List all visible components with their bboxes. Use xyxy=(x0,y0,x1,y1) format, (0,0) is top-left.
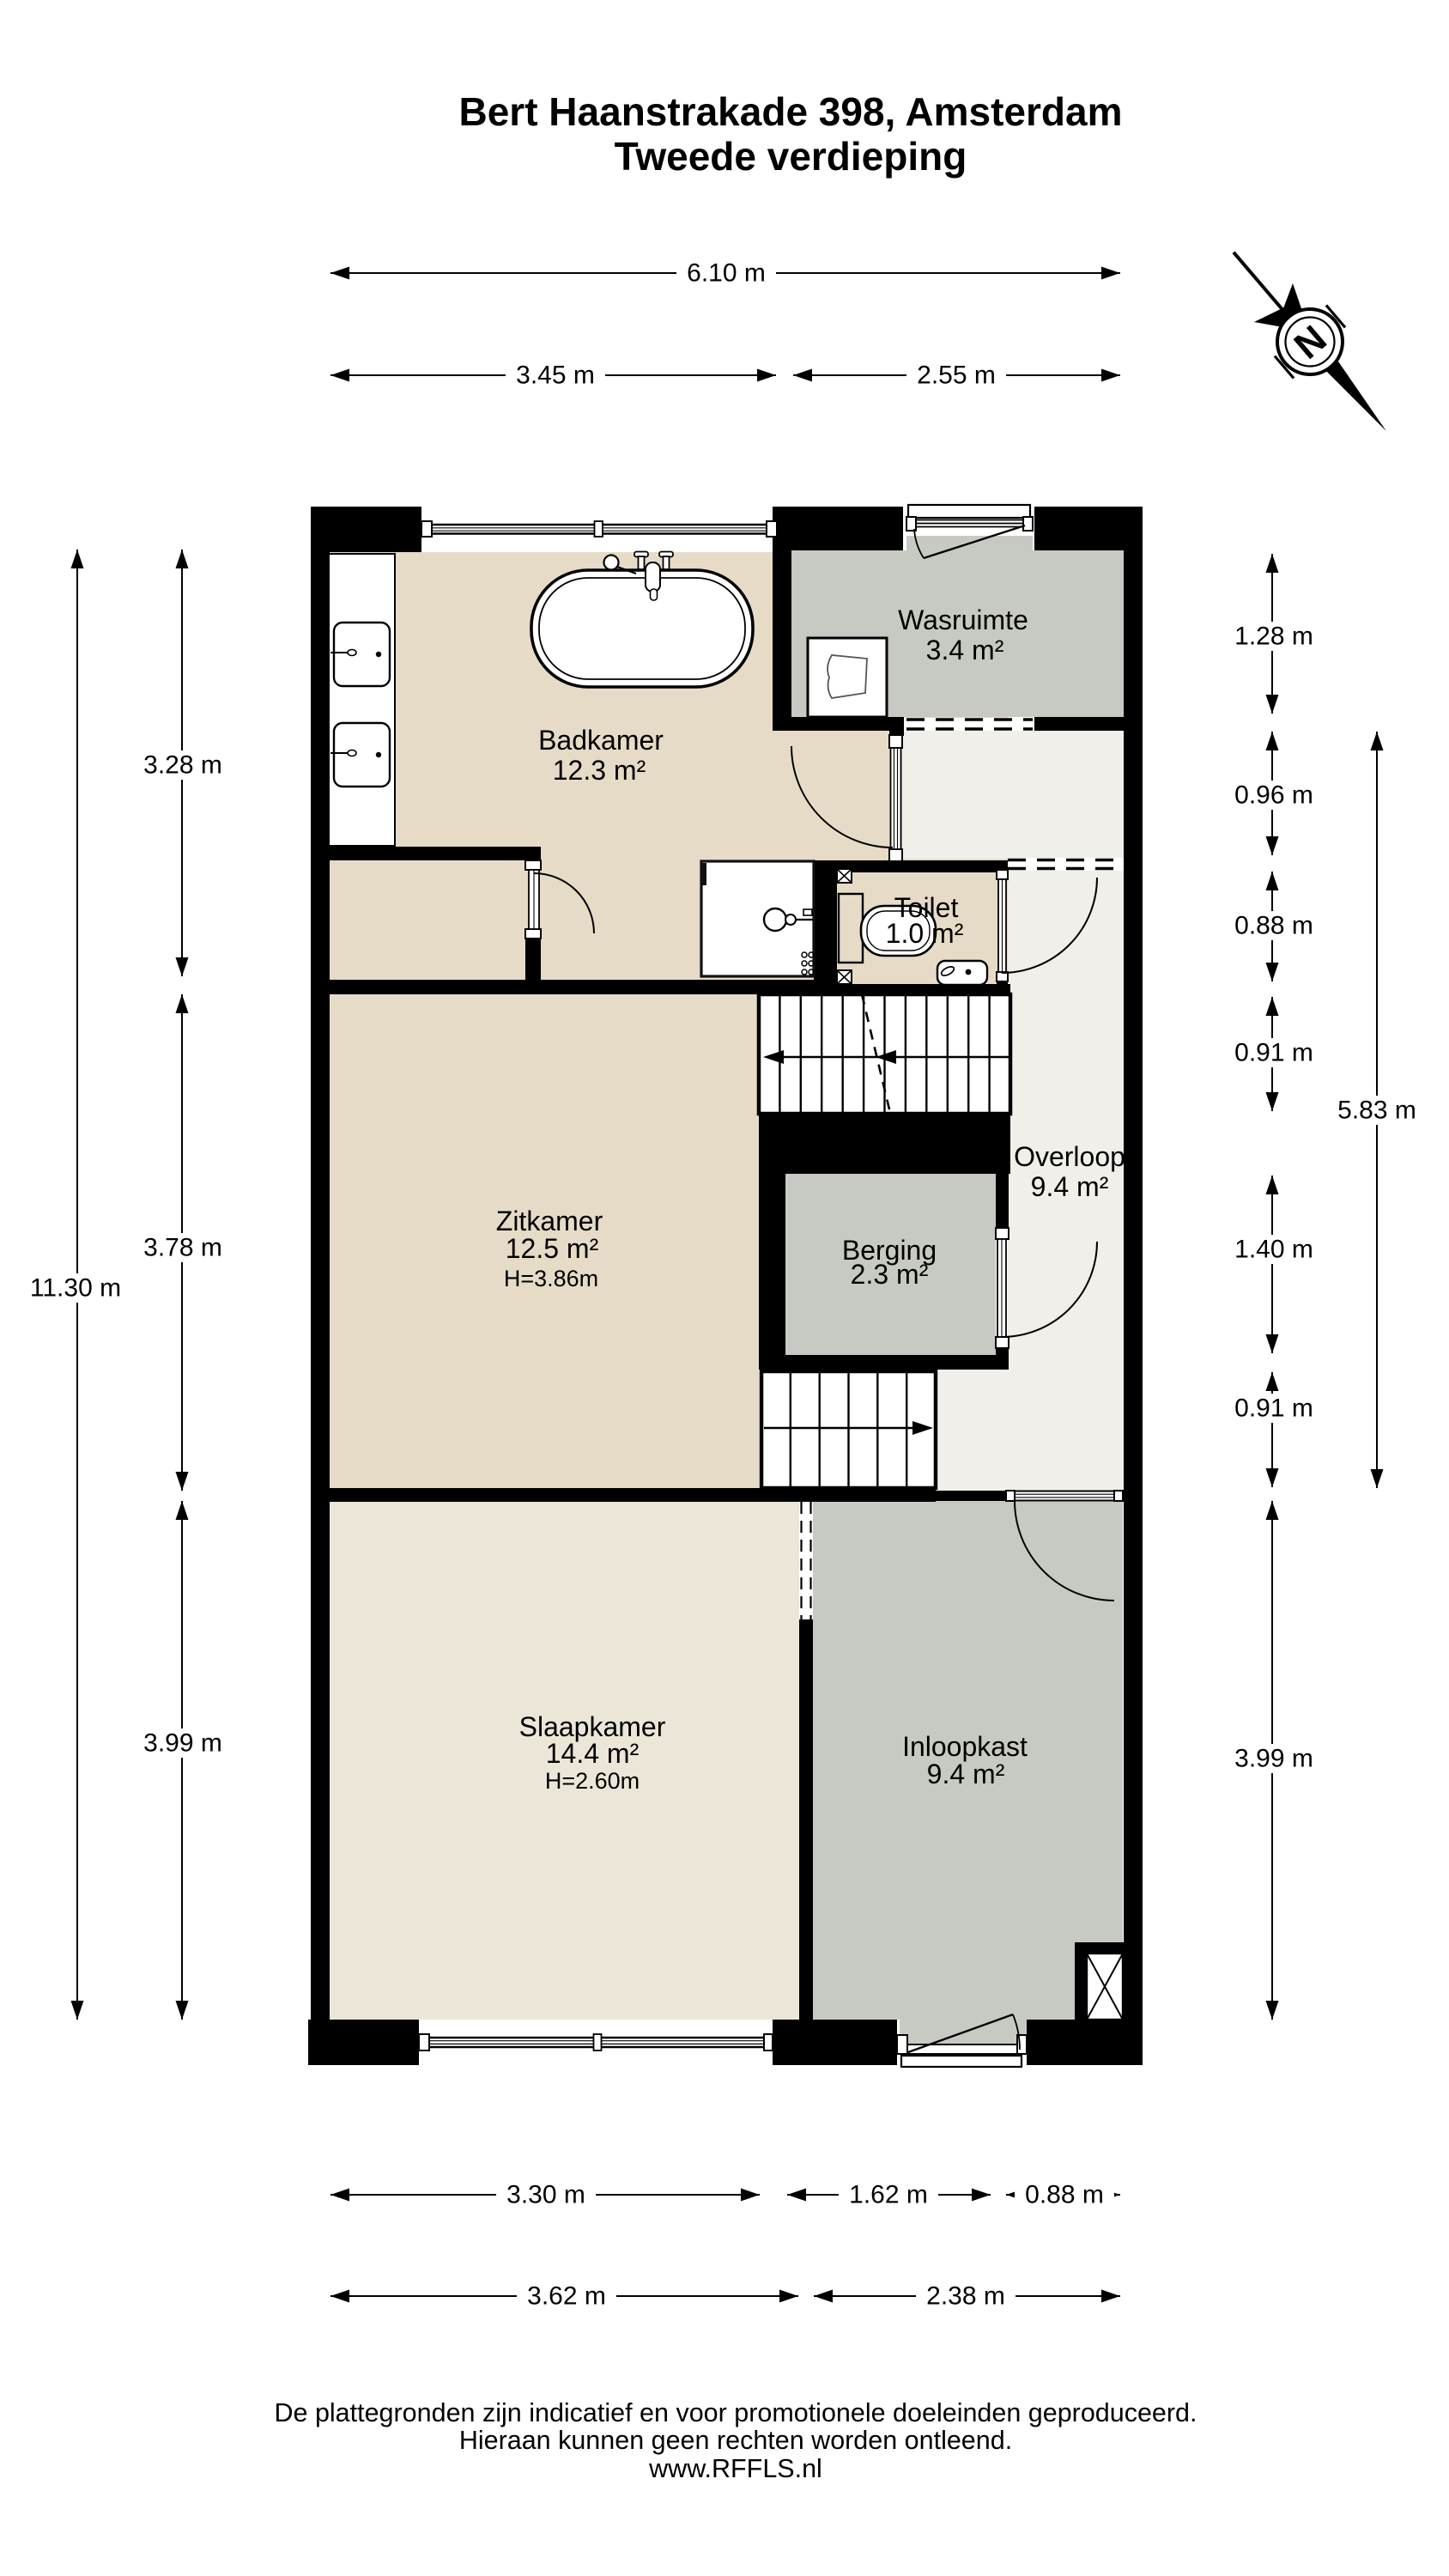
svg-text:3.62 m: 3.62 m xyxy=(527,2282,606,2311)
svg-text:Badkamer: Badkamer xyxy=(538,725,664,756)
svg-text:Hieraan kunnen geen rechten wo: Hieraan kunnen geen rechten worden ontle… xyxy=(459,2426,1012,2455)
svg-text:Zitkamer: Zitkamer xyxy=(496,1206,603,1236)
svg-text:6.10 m: 6.10 m xyxy=(687,259,766,288)
svg-text:Wasruimte: Wasruimte xyxy=(898,605,1028,635)
svg-text:0.91 m: 0.91 m xyxy=(1234,1039,1313,1067)
svg-text:2.38 m: 2.38 m xyxy=(926,2282,1005,2311)
svg-text:3.28 m: 3.28 m xyxy=(143,751,222,780)
svg-text:H=2.60m: H=2.60m xyxy=(545,1768,640,1794)
svg-text:0.88 m: 0.88 m xyxy=(1025,2181,1104,2209)
svg-text:2.55 m: 2.55 m xyxy=(917,361,996,390)
svg-text:12.5 m²: 12.5 m² xyxy=(506,1233,599,1264)
svg-text:11.30 m: 11.30 m xyxy=(30,1274,121,1303)
svg-text:0.88 m: 0.88 m xyxy=(1234,912,1313,940)
svg-text:9.4 m²: 9.4 m² xyxy=(927,1759,1005,1789)
svg-text:3.4 m²: 3.4 m² xyxy=(926,635,1004,665)
svg-text:Bert Haanstrakade 398, Amsterd: Bert Haanstrakade 398, Amsterdam xyxy=(459,89,1123,134)
svg-text:H=3.86m: H=3.86m xyxy=(504,1266,598,1291)
svg-text:1.40 m: 1.40 m xyxy=(1234,1236,1313,1264)
svg-text:3.99 m: 3.99 m xyxy=(1234,1745,1313,1773)
svg-text:Tweede verdieping: Tweede verdieping xyxy=(615,134,967,179)
svg-text:0.96 m: 0.96 m xyxy=(1234,781,1313,810)
svg-text:3.45 m: 3.45 m xyxy=(516,361,595,390)
svg-text:Inloopkast: Inloopkast xyxy=(902,1731,1028,1762)
svg-text:De plattegronden zijn indicati: De plattegronden zijn indicatief en voor… xyxy=(274,2398,1197,2427)
svg-text:9.4 m²: 9.4 m² xyxy=(1031,1171,1109,1202)
svg-text:2.3 m²: 2.3 m² xyxy=(851,1259,929,1290)
svg-text:12.3 m²: 12.3 m² xyxy=(553,755,646,786)
svg-text:1.28 m: 1.28 m xyxy=(1234,623,1313,651)
svg-text:1.0 m²: 1.0 m² xyxy=(886,918,964,949)
svg-text:Overloop: Overloop xyxy=(1014,1141,1125,1172)
svg-text:0.91 m: 0.91 m xyxy=(1234,1394,1313,1423)
svg-text:www.RFFLS.nl: www.RFFLS.nl xyxy=(648,2454,822,2483)
svg-text:3.30 m: 3.30 m xyxy=(506,2181,585,2209)
svg-text:5.83 m: 5.83 m xyxy=(1337,1097,1416,1125)
svg-text:14.4 m²: 14.4 m² xyxy=(546,1738,640,1769)
svg-text:3.99 m: 3.99 m xyxy=(143,1729,222,1758)
svg-text:1.62 m: 1.62 m xyxy=(849,2181,928,2209)
svg-text:3.78 m: 3.78 m xyxy=(143,1234,222,1262)
